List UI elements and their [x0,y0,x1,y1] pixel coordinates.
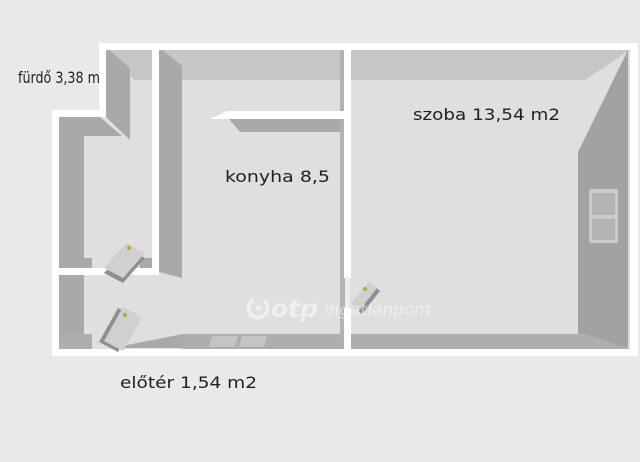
window-pane-upper [592,193,615,215]
entrance-door-handle [123,313,127,317]
window-pane-right [239,336,267,347]
furdo-konyha-divider-face [159,47,182,278]
furdo-door-handle [127,246,131,250]
right-wall-window [589,189,618,243]
left-wall [52,110,59,356]
window-pane-left [209,336,238,347]
watermark-brand: otp [271,294,318,323]
bottom-wall [52,349,638,356]
room-label-szoba: szoba 13,54 m2 [413,105,560,124]
top-wall [99,43,638,50]
otp-logo-dot-icon [256,305,262,311]
room-label-eloter: előtér 1,54 m2 [120,373,257,392]
furdo-north-wall [52,110,100,117]
room-label-furdo: fürdő 3,38 m2 [18,68,108,87]
konyha-north-wall [210,111,345,119]
bottom-wall-face-left [59,334,92,349]
furdo-konyha-divider [152,43,159,272]
window-pane-lower [592,219,615,240]
floor-plan-image: fürdő 3,38 m2 [0,0,640,462]
furdo-stub-wall [99,43,106,117]
top-wall-face [106,50,630,80]
right-wall [630,43,638,356]
konyha-szoba-divider-upper [344,43,351,278]
floor-plan-svg: fürdő 3,38 m2 [0,0,640,462]
watermark-suffix: ingatlanpont [324,300,432,319]
konyha-north-wall-face [229,119,345,132]
szoba-door-handle [363,287,367,291]
furdo-south-wall-face-left [84,258,92,268]
room-label-konyha: konyha 8,5 [225,167,330,186]
